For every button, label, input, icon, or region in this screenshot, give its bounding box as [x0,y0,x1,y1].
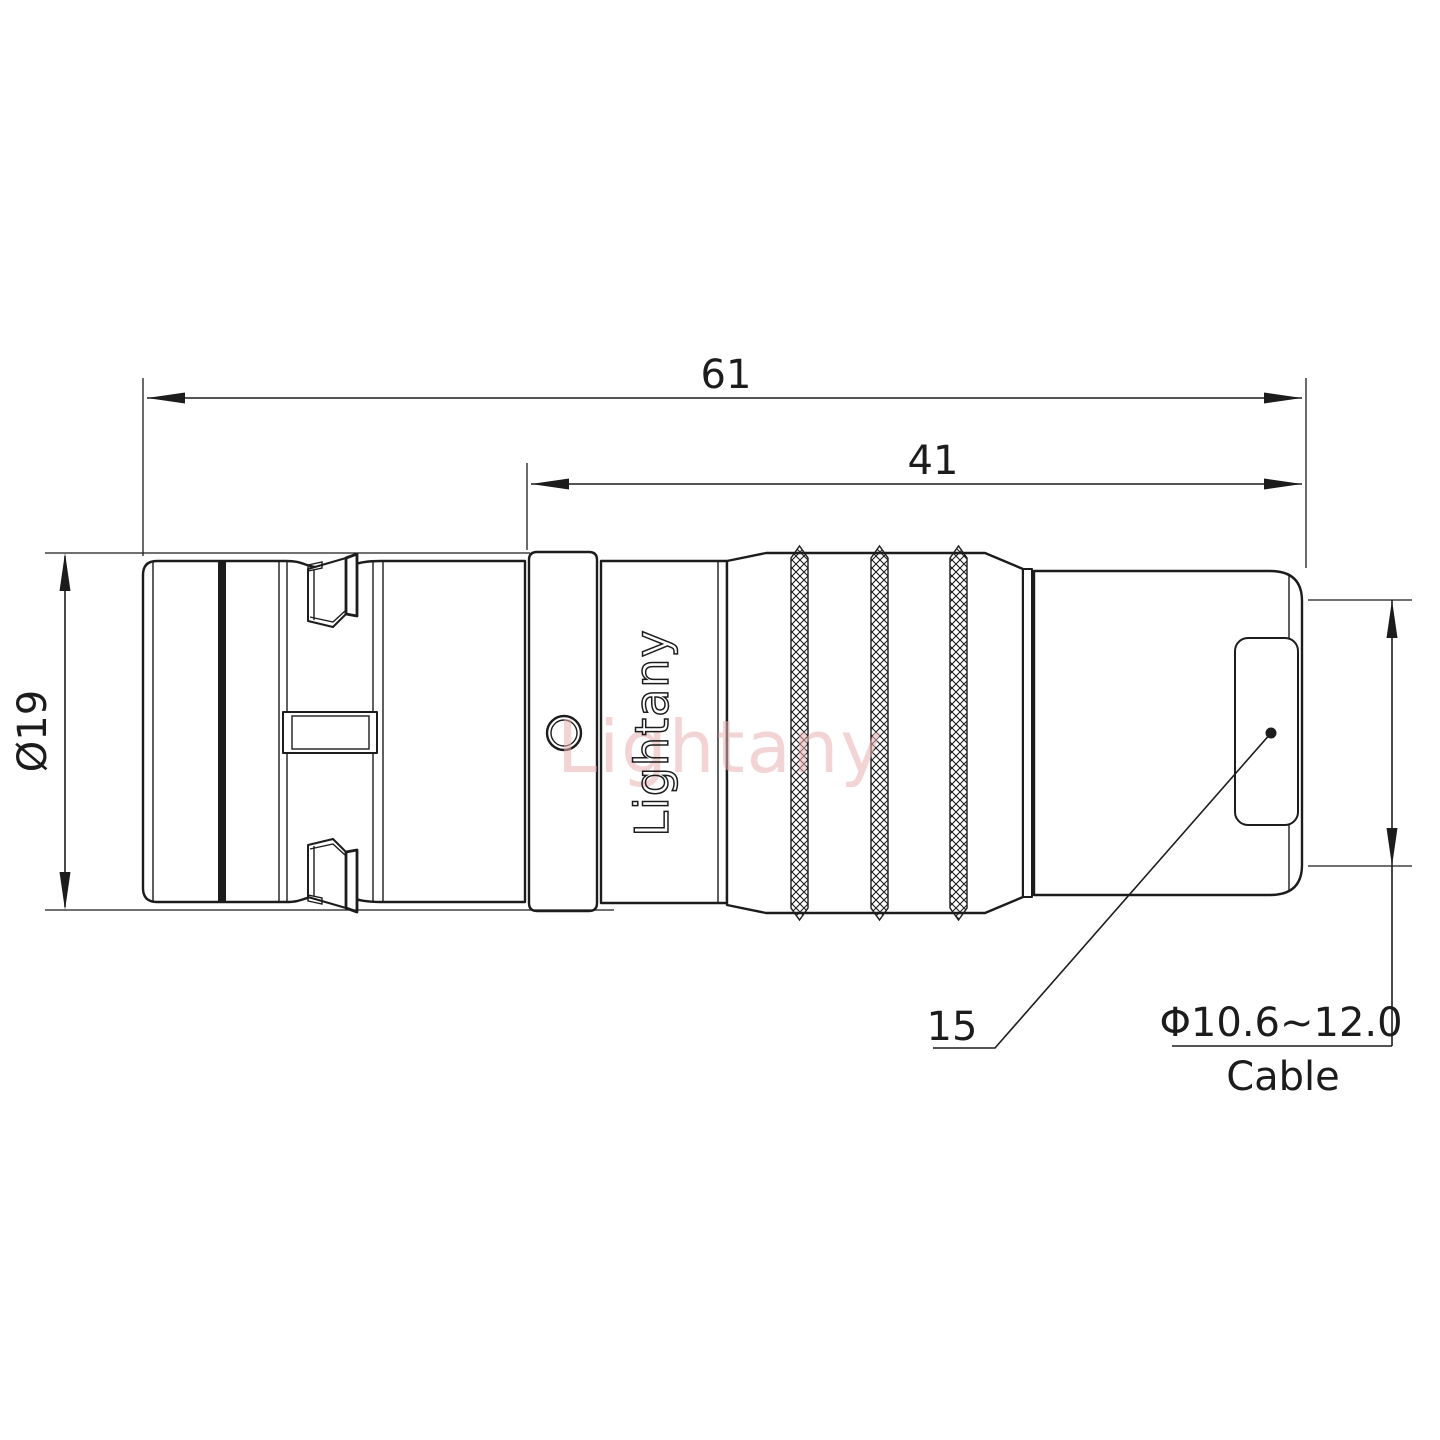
dimension-rear-length: 41 [527,438,1302,550]
arrowhead [1264,393,1302,404]
latch-bar [346,554,357,616]
arrowhead [1387,600,1398,638]
cable-label: Cable [1226,1054,1340,1100]
latch-bar [346,850,357,912]
cable-range-value: Φ10.6~12.0 [1159,1000,1402,1046]
drawing-page: Lightany Lightany 61 41 Ø19 15 [0,0,1440,1440]
body-brand-text: Lightany [625,629,679,836]
watermark-text: Lightany [557,705,885,789]
leader-value: 15 [927,1004,978,1050]
arrowhead [531,479,569,490]
latch-bottom [308,839,357,912]
arrowhead [60,553,71,591]
dimension-value: 61 [701,352,752,398]
arrowhead [1387,828,1398,866]
knurl-band [950,546,967,920]
end-cap [1023,569,1032,897]
arrowhead [147,393,185,404]
arrowhead [60,872,71,910]
dimension-value: 41 [908,438,959,484]
dimension-value: Ø19 [10,690,56,772]
arrowhead [1264,479,1302,490]
key-window-outer [283,712,377,753]
dimension-overall-length: 61 [143,352,1306,568]
latch-top [308,554,357,627]
technical-drawing-svg: Lightany Lightany 61 41 Ø19 15 [0,0,1440,1440]
seal-ring [218,561,226,902]
